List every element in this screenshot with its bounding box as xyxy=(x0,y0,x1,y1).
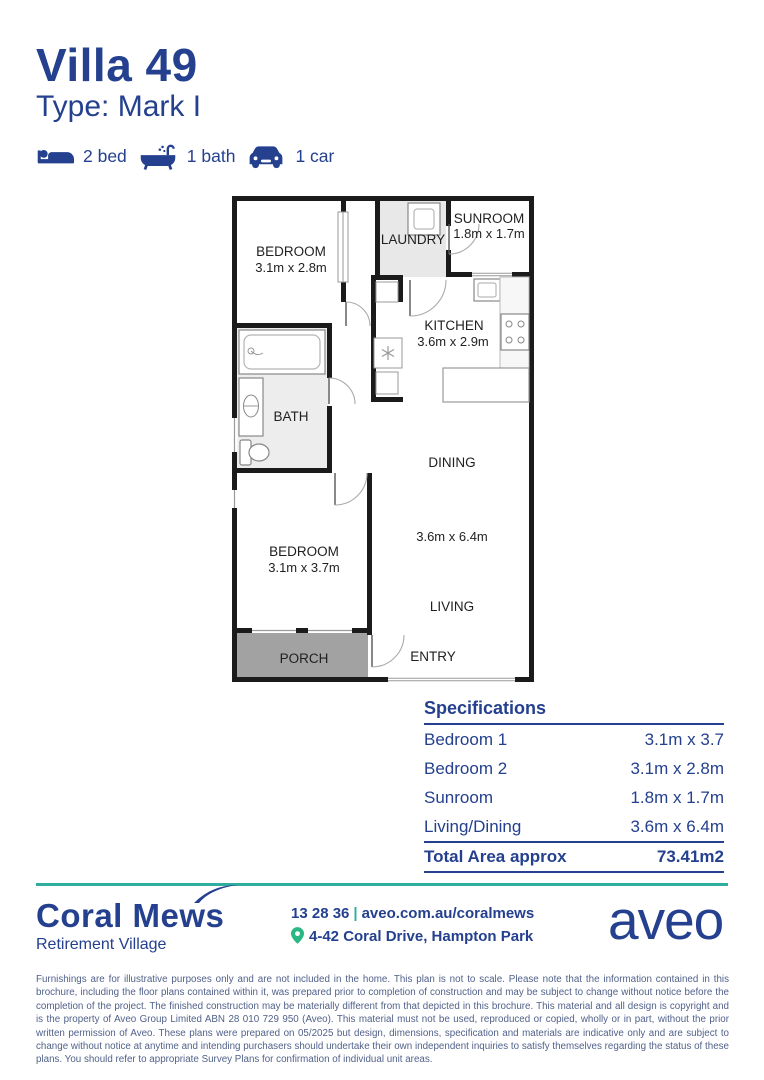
spec-row-sunroom: Sunroom 1.8m x 1.7m xyxy=(424,783,724,812)
specifications-title: Specifications xyxy=(424,698,724,725)
feature-beds: 2 bed xyxy=(36,144,127,169)
spec-value: 3.6m x 6.4m xyxy=(630,817,724,837)
feature-cars: 1 car xyxy=(246,144,334,169)
leaf-icon xyxy=(194,885,238,908)
living-dining-dims: 3.6m x 6.4m xyxy=(416,529,488,544)
spec-total-row: Total Area approx 73.41m2 xyxy=(424,841,724,873)
feature-summary: 2 bed 1 bath xyxy=(36,139,345,173)
aveo-logo: aveo xyxy=(608,888,723,952)
spec-value: 3.1m x 2.8m xyxy=(630,759,724,779)
website-link[interactable]: aveo.com.au/coralmews xyxy=(362,905,535,922)
separator: | xyxy=(349,905,361,922)
bed-icon xyxy=(36,144,74,169)
vanity-sink xyxy=(239,378,263,436)
disclaimer-text: Furnishings are for illustrative purpose… xyxy=(36,973,729,1067)
sunroom-dims: 1.8m x 1.7m xyxy=(453,226,525,241)
wardrobe xyxy=(338,212,348,282)
spec-value: 3.1m x 3.7 xyxy=(645,730,724,750)
kitchen-sink xyxy=(474,279,500,301)
spec-value: 1.8m x 1.7m xyxy=(630,788,724,808)
phone-number: 13 28 36 xyxy=(291,905,349,922)
spec-row-living-dining: Living/Dining 3.6m x 6.4m xyxy=(424,812,724,841)
contact-block: 13 28 36|aveo.com.au/coralmews 4-42 Cora… xyxy=(291,902,534,951)
specifications-table: Specifications Bedroom 1 3.1m x 3.7 Bedr… xyxy=(424,698,724,873)
car-icon xyxy=(246,144,286,169)
closets xyxy=(374,282,402,394)
bedroom2-label: BEDROOM xyxy=(256,244,326,259)
bedroom1-label: BEDROOM xyxy=(269,544,339,559)
coral-mews-logo: Coral Mews Retirement Village xyxy=(36,898,266,954)
spec-total-value: 73.41m2 xyxy=(657,847,724,867)
bath-icon xyxy=(138,141,178,171)
teal-divider xyxy=(36,883,728,886)
location-pin-icon xyxy=(291,927,304,951)
page-title: Villa 49 xyxy=(36,38,198,92)
porch-label: PORCH xyxy=(280,651,329,666)
spec-label: Sunroom xyxy=(424,788,493,808)
feature-baths: 1 bath xyxy=(138,141,236,171)
spec-label: Bedroom 2 xyxy=(424,759,507,779)
bathtub xyxy=(239,330,325,374)
sunroom-label: SUNROOM xyxy=(454,211,525,226)
brochure-page: Villa 49 Type: Mark I 2 bed xyxy=(0,0,764,1080)
feature-baths-label: 1 bath xyxy=(187,146,236,167)
spec-label: Living/Dining xyxy=(424,817,521,837)
island-bench xyxy=(443,368,529,402)
spec-row-bedroom2: Bedroom 2 3.1m x 2.8m xyxy=(424,754,724,783)
contact-line-2: 4-42 Coral Drive, Hampton Park xyxy=(291,925,534,951)
kitchen-label: KITCHEN xyxy=(424,318,483,333)
spec-total-label: Total Area approx xyxy=(424,847,567,867)
brand-subtitle: Retirement Village xyxy=(36,936,266,954)
bedroom2-dims: 3.1m x 2.8m xyxy=(255,260,327,275)
page-subtitle: Type: Mark I xyxy=(36,90,201,124)
feature-beds-label: 2 bed xyxy=(83,146,127,167)
feature-cars-label: 1 car xyxy=(295,146,334,167)
dining-label: DINING xyxy=(428,455,475,470)
bedroom1-dims: 3.1m x 3.7m xyxy=(268,560,340,575)
floor-plan: BEDROOM 3.1m x 2.8m LAUNDRY SUNROOM 1.8m… xyxy=(228,190,538,688)
laundry-label: LAUNDRY xyxy=(381,232,445,247)
bath-label: BATH xyxy=(273,409,308,424)
laundry-sink xyxy=(408,203,440,235)
contact-line-1: 13 28 36|aveo.com.au/coralmews xyxy=(291,902,534,925)
entry-label: ENTRY xyxy=(410,649,456,664)
cooktop xyxy=(501,314,529,350)
kitchen-dims: 3.6m x 2.9m xyxy=(417,334,489,349)
spec-row-bedroom1: Bedroom 1 3.1m x 3.7 xyxy=(424,725,724,754)
living-label: LIVING xyxy=(430,599,474,614)
spec-label: Bedroom 1 xyxy=(424,730,507,750)
address-text: 4-42 Coral Drive, Hampton Park xyxy=(309,928,533,945)
